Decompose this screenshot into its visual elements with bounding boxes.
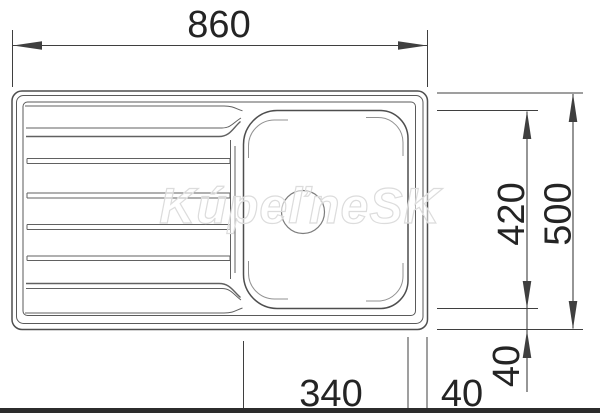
watermark-text: KúpeľneSK bbox=[159, 178, 443, 234]
arrowhead-up-icon bbox=[569, 94, 578, 123]
arrowhead-left-icon bbox=[13, 41, 42, 50]
dim-500-label: 500 bbox=[538, 182, 580, 245]
dim-420-label: 420 bbox=[491, 182, 533, 245]
technical-drawing-canvas: 860 500 420 40 340 40 bbox=[0, 0, 600, 416]
bowl-inner-corner-arc bbox=[249, 120, 289, 158]
arrowhead-down-icon bbox=[569, 301, 578, 329]
dimension-right-40: 40 bbox=[486, 309, 531, 392]
sink-drawing-svg: 860 500 420 40 340 40 bbox=[0, 0, 600, 416]
drainboard-bottom-edge bbox=[25, 308, 243, 313]
dim-40-bottom-label: 40 bbox=[441, 373, 483, 415]
dim-340-label: 340 bbox=[299, 373, 362, 415]
arrowhead-right-icon bbox=[398, 41, 427, 50]
dimension-top-860: 860 bbox=[13, 4, 428, 87]
dim-860-label: 860 bbox=[187, 4, 250, 46]
dim-40-right-label: 40 bbox=[486, 345, 528, 387]
drainboard-groove bbox=[27, 256, 230, 261]
drainboard-groove bbox=[27, 159, 230, 164]
bowl-inner-corner-arc bbox=[249, 261, 289, 299]
bowl-inner-corner-arc bbox=[366, 263, 403, 301]
drainboard-line bbox=[26, 122, 241, 137]
bowl-inner-corner-arc bbox=[366, 118, 403, 157]
drainboard-line bbox=[26, 284, 241, 298]
dimension-right-420: 420 bbox=[437, 111, 538, 309]
drainboard-top-edge bbox=[25, 106, 243, 111]
arrowhead-down-icon bbox=[523, 281, 532, 309]
arrowhead-up-icon bbox=[523, 111, 532, 139]
drainboard-line bbox=[26, 289, 241, 301]
drainboard-line bbox=[26, 118, 241, 128]
